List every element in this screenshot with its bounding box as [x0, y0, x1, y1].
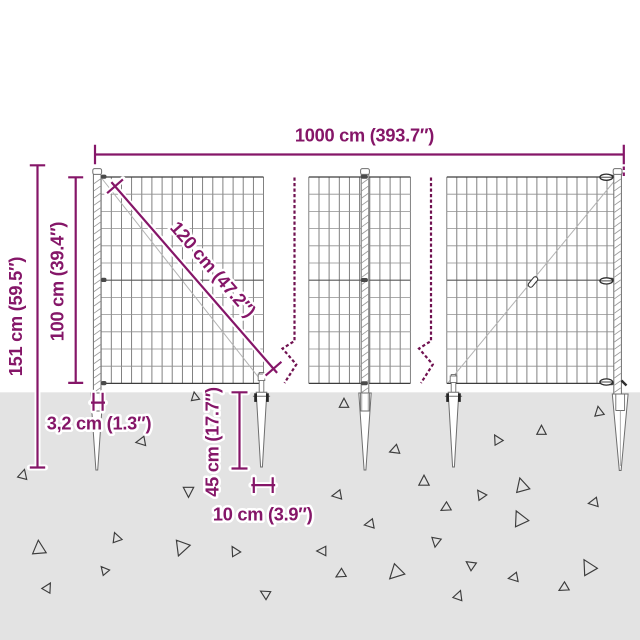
svg-text:10 cm (3.9″): 10 cm (3.9″) — [213, 505, 313, 525]
svg-text:151 cm (59.5″): 151 cm (59.5″) — [6, 257, 26, 377]
svg-text:100 cm (39.4″): 100 cm (39.4″) — [48, 222, 68, 342]
svg-text:1000 cm (393.7″): 1000 cm (393.7″) — [295, 126, 434, 146]
svg-text:45 cm (17.7″): 45 cm (17.7″) — [203, 387, 223, 497]
svg-text:3,2 cm (1.3″): 3,2 cm (1.3″) — [47, 413, 152, 433]
